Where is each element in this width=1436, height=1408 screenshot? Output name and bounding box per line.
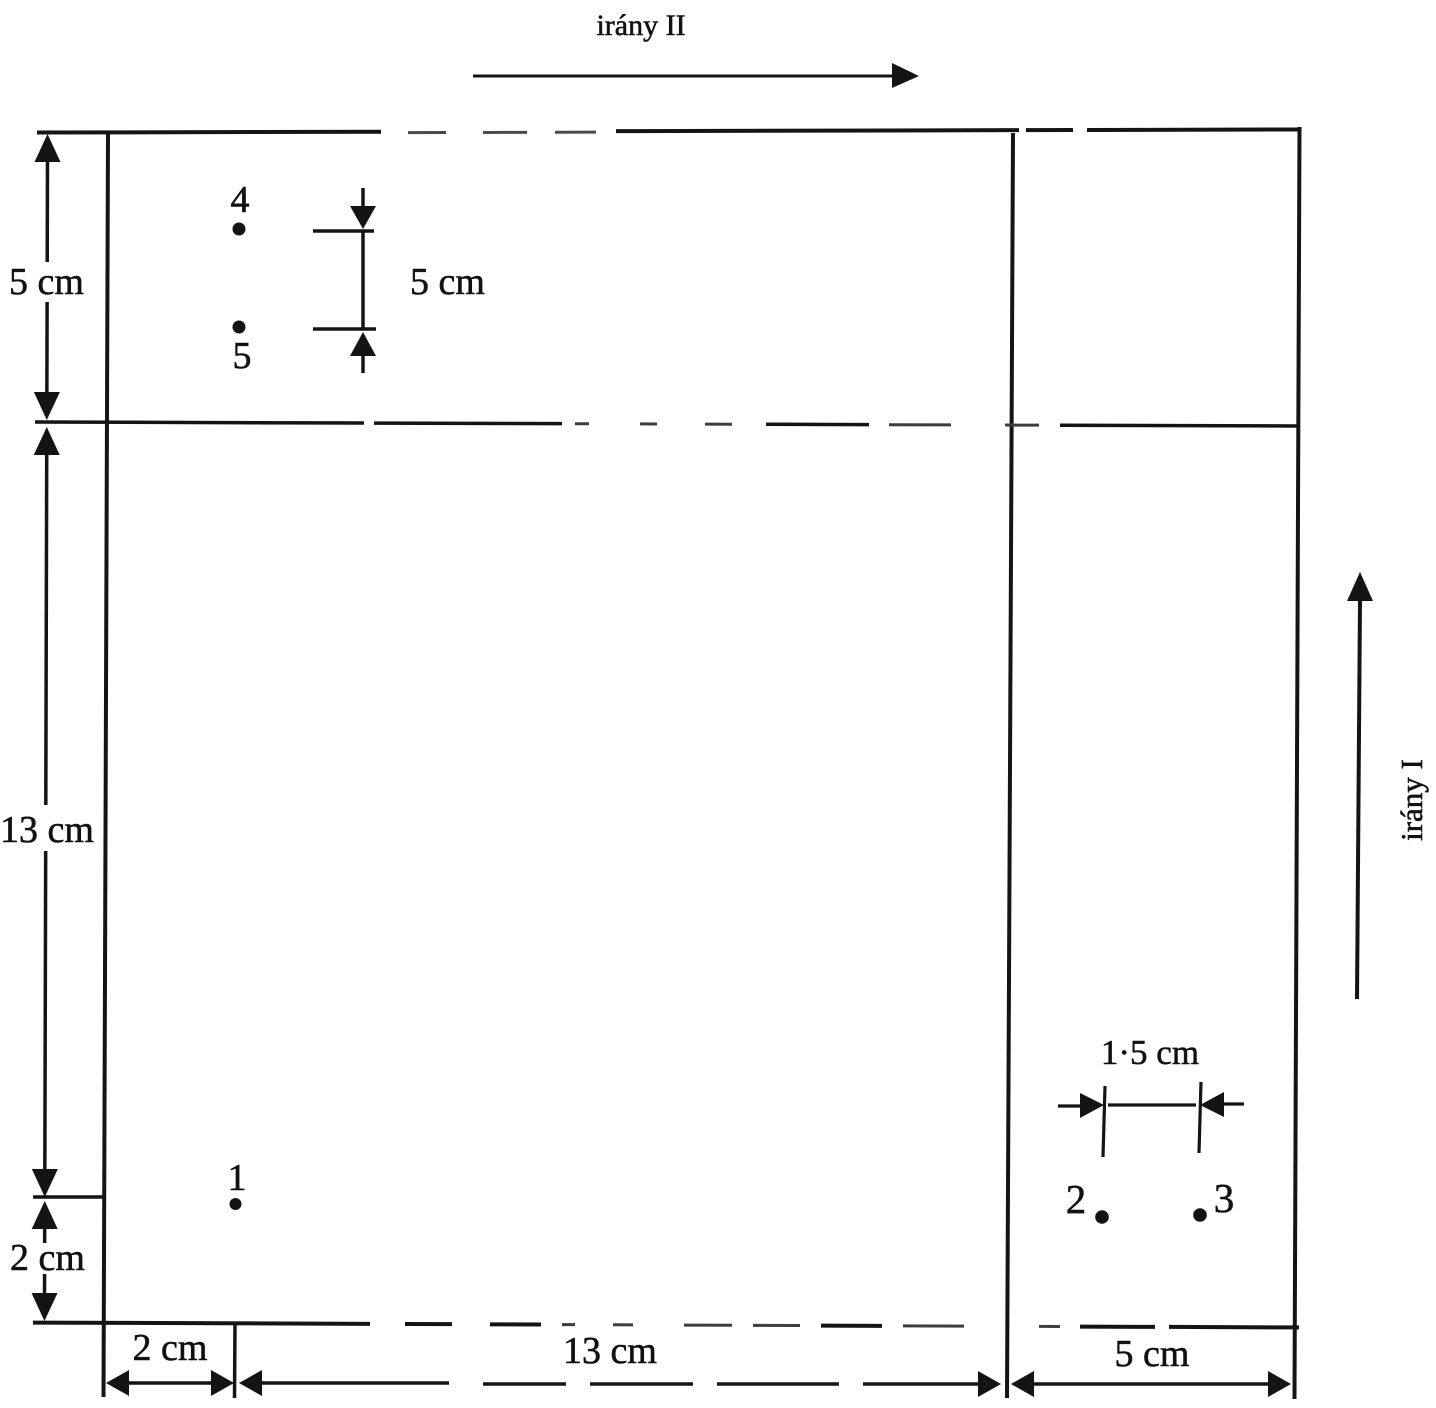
svg-text:5: 5	[233, 335, 252, 377]
svg-text:2 cm: 2 cm	[133, 1327, 208, 1369]
svg-text:irány I: irány I	[1394, 759, 1429, 841]
svg-text:5 cm: 5 cm	[1115, 1333, 1190, 1375]
svg-text:13 cm: 13 cm	[563, 1330, 657, 1372]
svg-text:5 cm: 5 cm	[9, 261, 84, 303]
svg-text:1·5 cm: 1·5 cm	[1101, 1033, 1199, 1072]
svg-text:3: 3	[1214, 1175, 1235, 1221]
svg-text:irány II: irány II	[596, 9, 685, 42]
svg-text:13 cm: 13 cm	[0, 809, 94, 851]
svg-text:4: 4	[231, 179, 250, 221]
svg-text:2: 2	[1066, 1176, 1087, 1222]
svg-text:5 cm: 5 cm	[410, 261, 485, 303]
svg-text:1: 1	[228, 1157, 247, 1199]
svg-text:2 cm: 2 cm	[10, 1237, 85, 1279]
